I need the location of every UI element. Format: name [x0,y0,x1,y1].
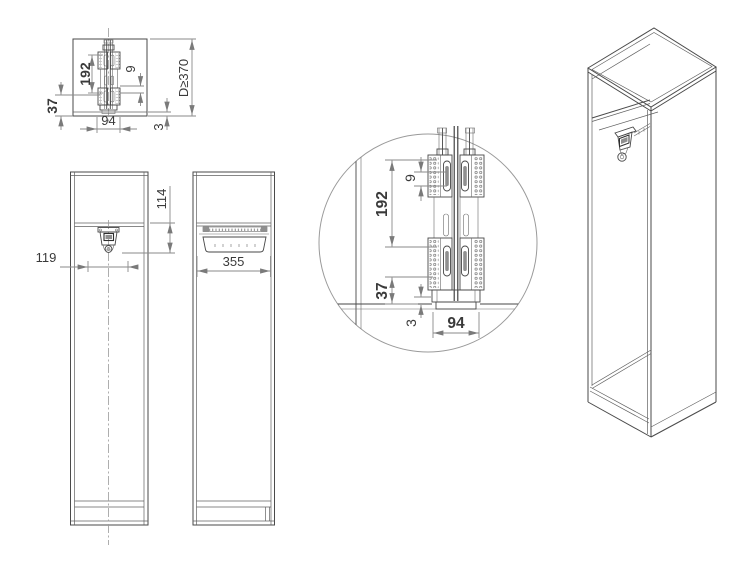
dim-label: 37 [44,98,60,114]
dim-label: 94 [447,315,465,332]
detail-cabinet-walls [320,134,537,352]
front-view: 114 119 [36,172,175,545]
detail-view: 9 192 37 3 [319,126,537,352]
dim-label: 9 [402,174,418,182]
plan-dim-3: 3 [148,98,171,131]
detail-dim-37: 37 [374,277,433,304]
plan-pullout-mechanism [98,40,120,114]
dim-label: 114 [154,189,169,210]
detail-pullout-mechanism [428,126,484,309]
drawing-svg: 192 9 D≥370 37 [0,0,750,562]
isometric-view [588,28,716,437]
detail-dim-94: 94 [433,312,479,338]
dim-label: 355 [223,254,245,269]
dim-label: 119 [36,250,57,265]
plan-dim-9: 9 [120,65,144,106]
dim-label: 37 [374,282,391,299]
side-rail-assembly [199,227,269,253]
dim-label: 192 [77,62,93,86]
dim-label: 192 [374,191,391,217]
iso-hook-mechanism [615,124,650,162]
dim-label: 3 [403,319,419,327]
side-view: 355 [193,172,275,525]
front-cabinet-outline [71,172,149,525]
detail-dim-192: 192 [374,160,437,247]
plan-dim-depth: D≥370 [150,39,196,116]
technical-drawing-sheet: 192 9 D≥370 37 [0,0,750,562]
side-cabinet-outline [193,172,275,525]
dim-label: 9 [123,65,138,72]
side-dim-355: 355 [197,254,271,277]
iso-cabinet-body [588,28,716,437]
plan-view: 192 9 D≥370 37 [44,28,196,133]
dim-label: 94 [101,113,115,128]
dim-label: D≥370 [176,59,191,97]
detail-dim-3: 3 [403,284,431,327]
front-dim-119: 119 [36,250,136,272]
dim-label: 3 [151,123,166,130]
